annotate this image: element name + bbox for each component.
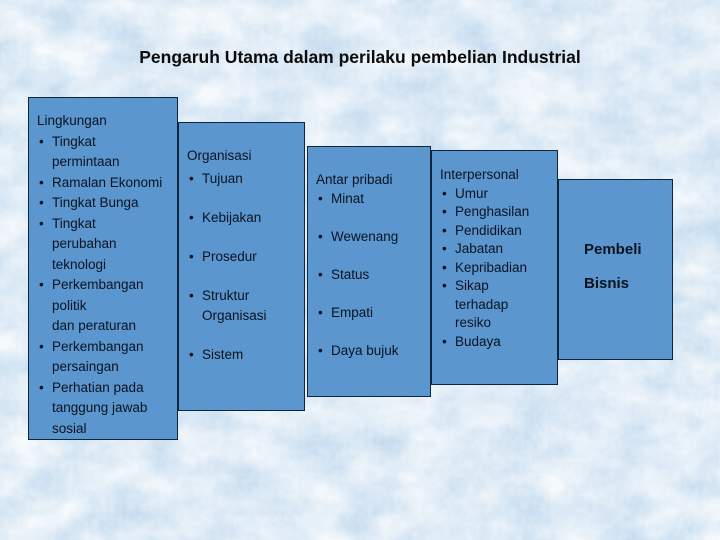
box-interpersonal-header: Interpersonal — [440, 166, 553, 185]
bullet-line: permintaan — [52, 152, 173, 173]
bullet-line: Kebijakan — [202, 208, 300, 228]
bisnis-label: Bisnis — [584, 274, 666, 293]
bullet-line: Umur — [455, 185, 553, 204]
bullet-item: Perhatian padatanggung jawabsosial — [37, 378, 173, 440]
bullet-line: politik — [52, 296, 173, 317]
pembeli-label: Pembeli — [584, 240, 666, 259]
antar-pribadi-bullet-list: MinatWewenangStatusEmpatiDaya bujuk — [316, 189, 426, 360]
box-lingkungan-header: Lingkungan — [37, 111, 173, 132]
bullet-item: StrukturOrganisasi — [187, 286, 300, 326]
bullet-item: Tujuan — [187, 169, 300, 189]
bullet-line: Daya bujuk — [331, 341, 426, 360]
bullet-line: Pendidikan — [455, 222, 553, 241]
bullet-item: Minat — [316, 189, 426, 208]
bullet-line: Empati — [331, 303, 426, 322]
bullet-line: Prosedur — [202, 247, 300, 267]
bullet-item: Tingkatpermintaan — [37, 132, 173, 173]
bullet-line: Budaya — [455, 333, 553, 352]
bullet-line: Perkembangan — [52, 275, 173, 296]
bullet-line: Tingkat — [52, 132, 173, 153]
bullet-line: Organisasi — [202, 306, 300, 326]
bullet-line: sosial — [52, 419, 173, 440]
bullet-line: Status — [331, 265, 426, 284]
bullet-line: Struktur — [202, 286, 300, 306]
bullet-item: Kepribadian — [440, 259, 553, 278]
bullet-item: Ramalan Ekonomi — [37, 173, 173, 194]
box-lingkungan: Lingkungan TingkatpermintaanRamalan Ekon… — [28, 97, 178, 440]
bullet-item: Tingkatperubahanteknologi — [37, 214, 173, 276]
bullet-line: Sikap — [455, 277, 553, 296]
bullet-line: Minat — [331, 189, 426, 208]
bullet-item: Penghasilan — [440, 203, 553, 222]
bullet-item: Sistem — [187, 345, 300, 365]
interpersonal-bullet-list: UmurPenghasilanPendidikanJabatanKepribad… — [440, 185, 553, 352]
bullet-line: Perkembangan — [52, 337, 173, 358]
lingkungan-bullet-list: TingkatpermintaanRamalan EkonomiTingkat … — [37, 132, 173, 440]
bullet-line: Sistem — [202, 345, 300, 365]
bullet-item: Sikapterhadapresiko — [440, 277, 553, 333]
bullet-item: Prosedur — [187, 247, 300, 267]
box-organisasi-header: Organisasi — [187, 146, 300, 166]
bullet-line: Kepribadian — [455, 259, 553, 278]
bullet-item: Umur — [440, 185, 553, 204]
bullet-item: Perkembanganpersaingan — [37, 337, 173, 378]
bullet-item: Perkembanganpolitikdan peraturan — [37, 275, 173, 337]
bullet-item: Daya bujuk — [316, 341, 426, 360]
bullet-line: Ramalan Ekonomi — [52, 173, 173, 194]
bullet-item: Empati — [316, 303, 426, 322]
slide: Pengaruh Utama dalam perilaku pembelian … — [0, 0, 720, 540]
bullet-line: Perhatian pada — [52, 378, 173, 399]
bullet-item: Kebijakan — [187, 208, 300, 228]
bullet-line: Tingkat Bunga — [52, 193, 173, 214]
box-pembeli-bisnis: Pembeli Bisnis — [558, 179, 673, 360]
bullet-item: Status — [316, 265, 426, 284]
bullet-line: dan peraturan — [52, 316, 173, 337]
bullet-line: perubahan — [52, 234, 173, 255]
bullet-line: teknologi — [52, 255, 173, 276]
bullet-line: Tingkat — [52, 214, 173, 235]
slide-title: Pengaruh Utama dalam perilaku pembelian … — [0, 47, 720, 68]
bullet-item: Tingkat Bunga — [37, 193, 173, 214]
bullet-item: Budaya — [440, 333, 553, 352]
bullet-line: resiko — [455, 314, 553, 333]
bullet-item: Wewenang — [316, 227, 426, 246]
bullet-item: Pendidikan — [440, 222, 553, 241]
bullet-line: Wewenang — [331, 227, 426, 246]
bullet-line: persaingan — [52, 357, 173, 378]
box-antar-pribadi: Antar pribadi MinatWewenangStatusEmpatiD… — [307, 146, 431, 397]
organisasi-bullet-list: TujuanKebijakanProsedurStrukturOrganisas… — [187, 169, 300, 365]
bullet-line: tanggung jawab — [52, 398, 173, 419]
box-antar-pribadi-header: Antar pribadi — [316, 170, 426, 189]
box-organisasi: Organisasi TujuanKebijakanProsedurStrukt… — [178, 122, 305, 411]
bullet-line: terhadap — [455, 296, 553, 315]
box-interpersonal: Interpersonal UmurPenghasilanPendidikanJ… — [431, 150, 558, 385]
bullet-item: Jabatan — [440, 240, 553, 259]
bullet-line: Penghasilan — [455, 203, 553, 222]
bullet-line: Tujuan — [202, 169, 300, 189]
bullet-line: Jabatan — [455, 240, 553, 259]
